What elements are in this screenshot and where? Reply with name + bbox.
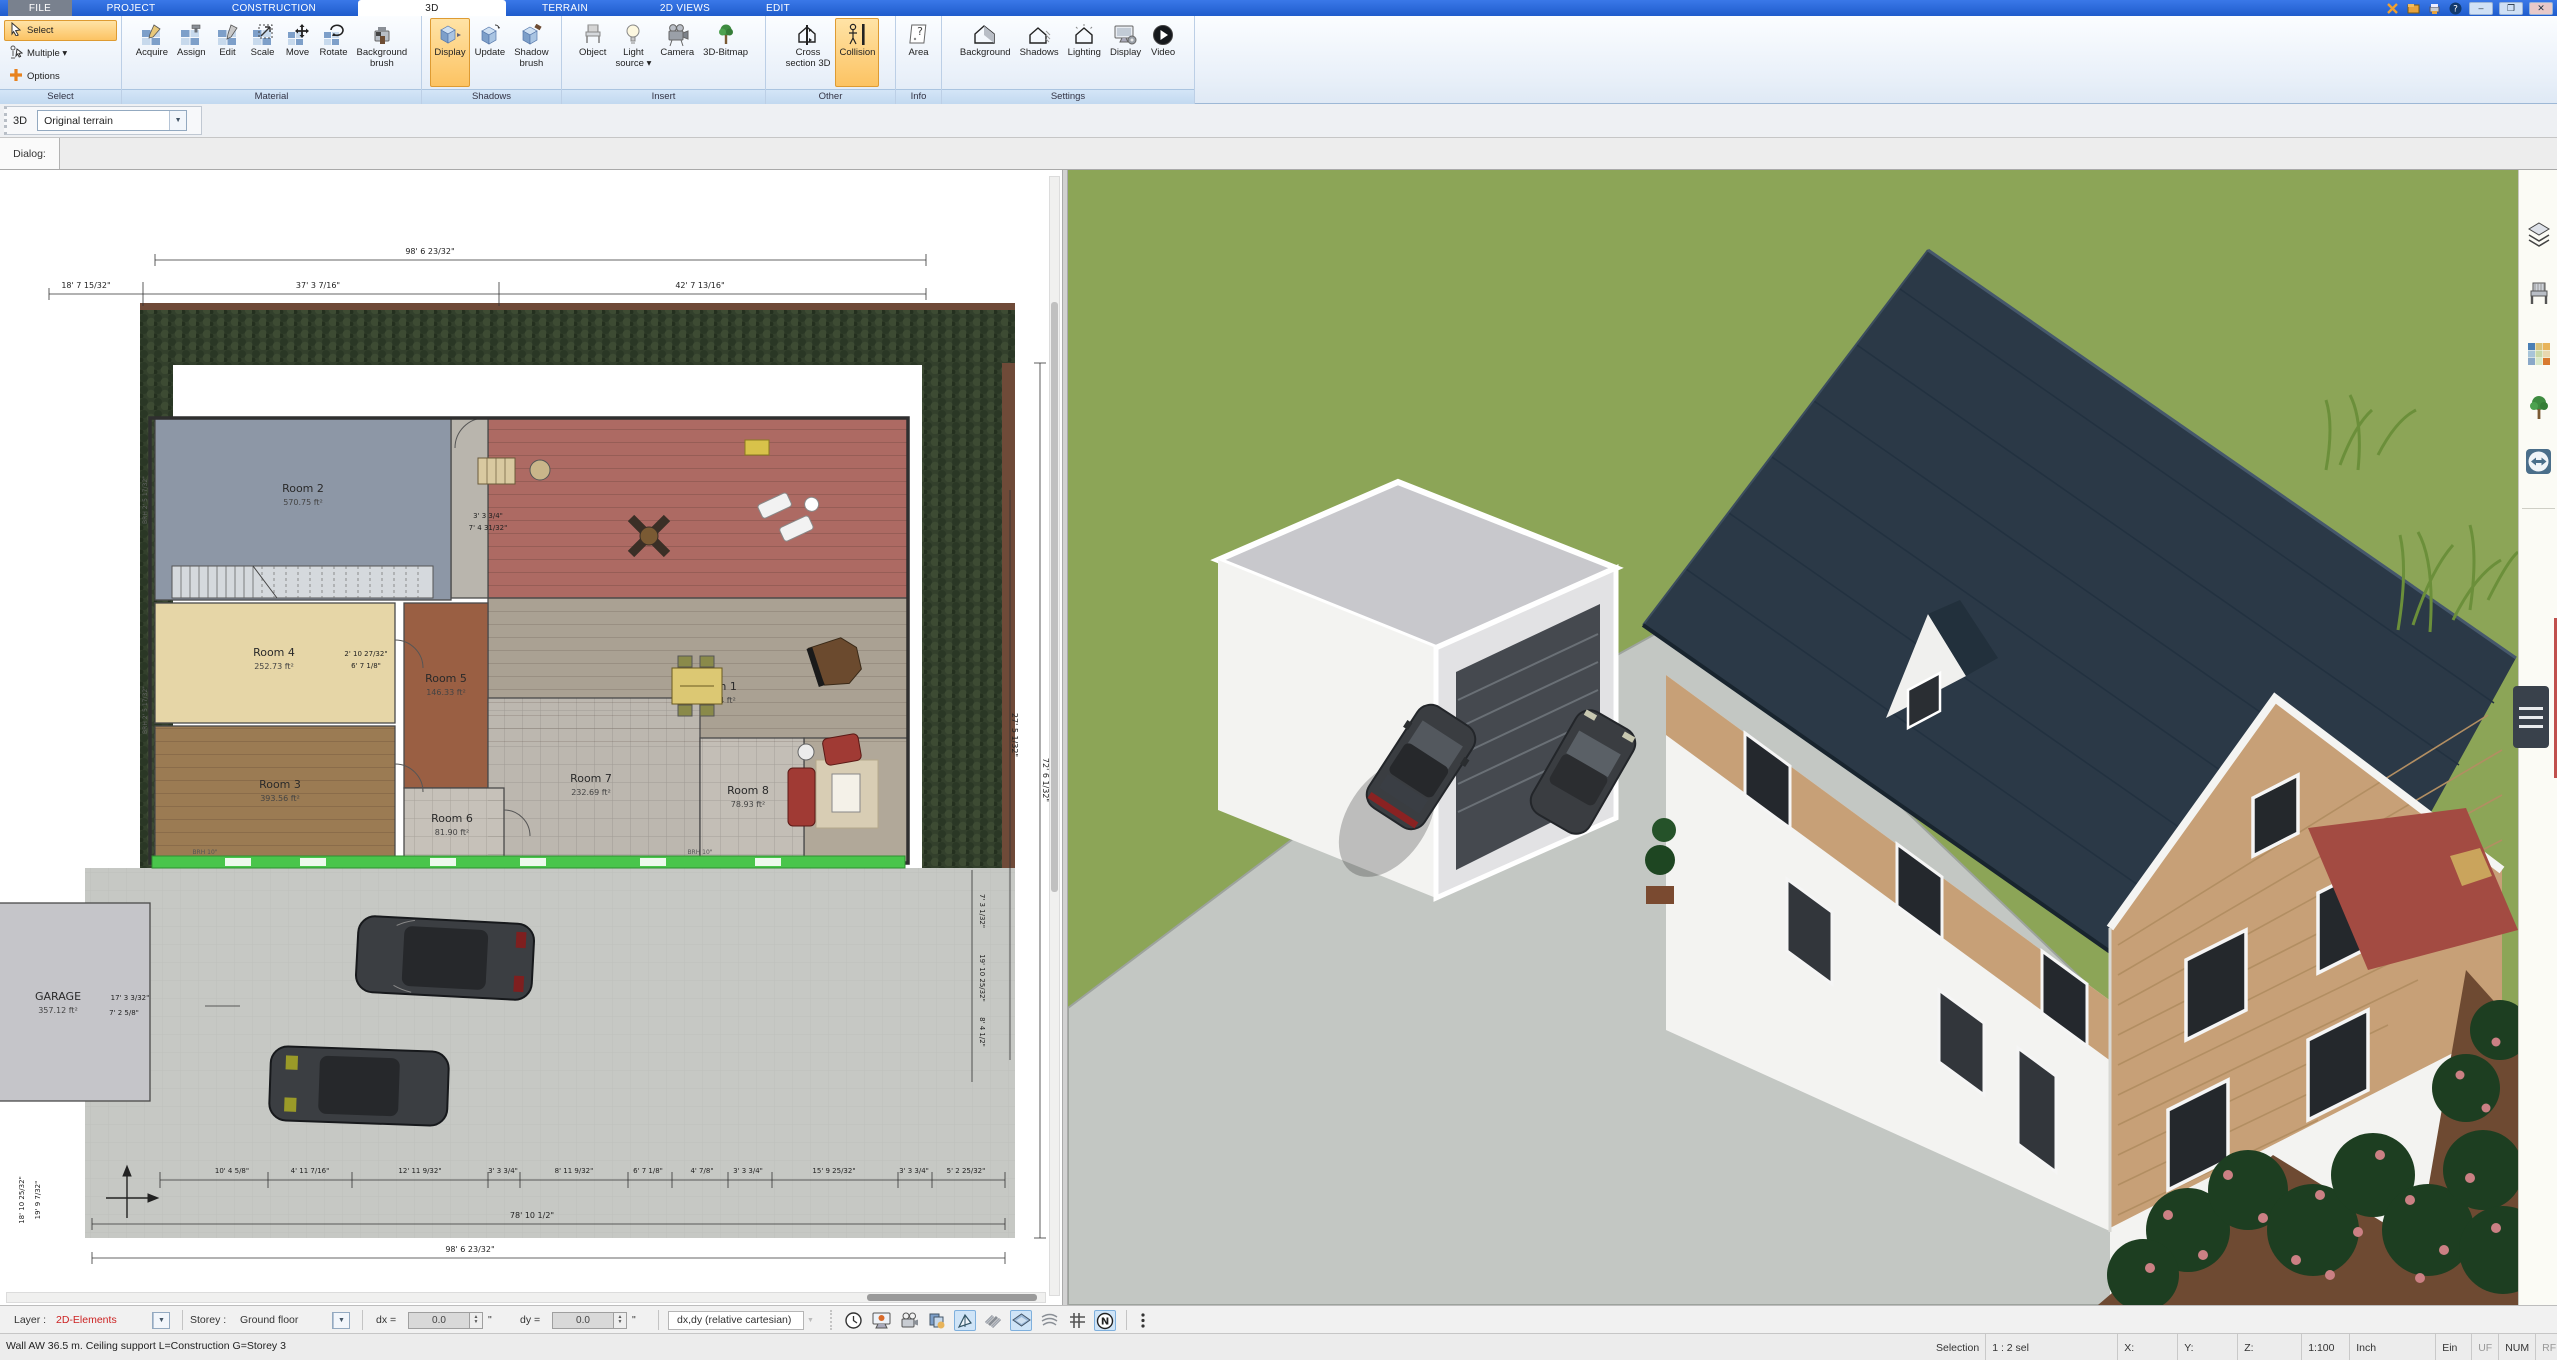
dimension-label: 42' 7 13/16" (675, 281, 724, 290)
collision-person-icon (845, 22, 869, 48)
layer-select-value: 2D-Elements (56, 1314, 152, 1326)
dx-field[interactable]: 0.0 ▲▼ " (408, 1306, 492, 1334)
camera-button[interactable]: Camera (656, 18, 698, 87)
dimension-label: 3' 3 3/4" (733, 1167, 763, 1175)
scroll-thumb[interactable] (867, 1294, 1037, 1301)
chevron-down-icon[interactable]: ▼ (169, 111, 186, 130)
monitor-gear-icon (1113, 22, 1139, 48)
ribbon: Select Multiple ▾ Options Select Acquire (0, 16, 2557, 104)
chevron-down-icon: ▼ (807, 1317, 814, 1324)
restore-button[interactable]: ❐ (2499, 2, 2523, 15)
dx-value[interactable]: 0.0 (408, 1312, 470, 1329)
close-button[interactable]: ✕ (2529, 2, 2553, 15)
terrain-select-value: Original terrain (38, 115, 169, 127)
rotate-button[interactable]: Rotate (316, 18, 352, 87)
ribbon-group-material: Acquire Assign Edit Scale Move (122, 16, 422, 104)
svg-text:?: ? (2453, 4, 2458, 14)
dimension-label: 7' 2 5/8" (109, 1009, 139, 1017)
ribbon-group-insert: Object Light source ▾ Camera 3D-Bitmap I… (562, 16, 766, 104)
plan-2d-view[interactable]: Room 2570.75 ft²Room 1714.34 ft²Room 425… (0, 170, 1062, 1305)
tab-construction[interactable]: CONSTRUCTION (190, 0, 358, 16)
floor-plan[interactable]: Room 2570.75 ft²Room 1714.34 ft²Room 425… (0, 170, 1062, 1305)
unit-indicator[interactable]: Inch (2349, 1334, 2435, 1360)
dimension-label: 27' 5 1/32" (1010, 713, 1019, 757)
storey-select-value: Ground floor (240, 1314, 332, 1326)
contour-icon[interactable] (1038, 1310, 1060, 1331)
dimension-label: 6' 7 1/8" (633, 1167, 663, 1175)
coord-mode-value: dx,dy (relative cartesian) (668, 1311, 804, 1330)
collision-button[interactable]: Collision (835, 18, 879, 87)
house-light-icon (1072, 22, 1096, 48)
group-caption: Material (122, 89, 421, 104)
dx-label: dx = (376, 1306, 396, 1334)
more-icon[interactable] (1132, 1310, 1154, 1331)
svg-text:?: ? (917, 25, 923, 38)
options-button[interactable]: Options (4, 66, 117, 87)
dimension-label: 98' 6 23/32" (405, 247, 454, 256)
dimension-label: BRH 2' 5 17/32" (142, 686, 149, 734)
dimension-label: 78' 10 1/2" (510, 1211, 554, 1220)
workspace: Room 2570.75 ft²Room 1714.34 ft²Room 425… (0, 170, 2557, 1305)
room-area-label: 570.75 ft² (283, 498, 323, 507)
dialog-row: Dialog: (0, 138, 2557, 170)
layer-display-icon[interactable] (2525, 220, 2552, 247)
ribbon-group-other: Cross section 3D Collision Other (766, 16, 896, 104)
tab-terrain[interactable]: TERRAIN (506, 0, 624, 16)
area-info-icon: ? (908, 22, 930, 48)
remote-connect-icon[interactable] (2525, 448, 2552, 475)
dimension-label: 2' 10 27/32" (344, 650, 387, 658)
edit-material-button[interactable]: Edit (211, 18, 245, 87)
plus-icon (9, 68, 23, 85)
side-toolbar (2518, 170, 2557, 1305)
ribbon-group-shadows: Display Update Shadow brush Shadows (422, 16, 562, 104)
group-caption: Select (0, 89, 121, 104)
terrain-select[interactable]: Original terrain ▼ (37, 110, 187, 131)
room-area-label: 252.73 ft² (254, 662, 294, 671)
dx-stepper[interactable]: ▲▼ (470, 1312, 483, 1329)
room-label: Room 2 (282, 482, 324, 495)
statusbar: Wall AW 36.5 m. Ceiling support L=Constr… (0, 1333, 2557, 1360)
tab-file[interactable]: FILE (8, 0, 72, 16)
view-mode-label: 3D (13, 115, 27, 127)
group-caption: Settings (942, 89, 1194, 104)
y-coordinate: Y: (2177, 1334, 2237, 1360)
lighting-settings-button[interactable]: Lighting (1064, 18, 1105, 87)
object-button[interactable]: Object (575, 18, 610, 87)
group-caption: Shadows (422, 89, 561, 104)
x-coordinate: X: (2117, 1334, 2177, 1360)
dimension-label: 8' 11 9/32" (555, 1167, 594, 1175)
cursor-icon (9, 22, 23, 39)
plan-car[interactable] (355, 915, 535, 1000)
cube-refresh-icon (479, 22, 501, 48)
brush-icon (370, 22, 394, 48)
tools-icon[interactable] (2385, 2, 2400, 15)
dimension-label: 8' 4 1/2" (978, 1017, 986, 1047)
dimension-label: 19' 9 7/32" (34, 1181, 42, 1220)
stairs[interactable] (172, 566, 433, 598)
dimension-label: 17' 3 3/32" (111, 994, 150, 1002)
multiple-button[interactable]: Multiple ▾ (4, 43, 117, 64)
tab-project[interactable]: PROJECT (72, 0, 190, 16)
help-icon[interactable]: ? (2448, 2, 2463, 15)
plan-room[interactable]: Room 5146.33 ft² (404, 603, 488, 788)
ein-indicator: Ein (2435, 1334, 2471, 1360)
camera-icon (665, 22, 689, 48)
scroll-thumb[interactable] (1051, 302, 1058, 892)
group-caption: Other (766, 89, 895, 104)
render-3d-view[interactable] (1068, 170, 2518, 1305)
acquire-button[interactable]: Acquire (132, 18, 172, 87)
divider (2522, 508, 2555, 509)
cube-icon (438, 22, 462, 48)
dimension-label: 19' 10 25/32" (978, 954, 986, 1002)
uf-indicator: UF (2471, 1334, 2498, 1360)
room-label: GARAGE (35, 990, 81, 1003)
application-window: FILE PROJECT CONSTRUCTION 3D TERRAIN 2D … (0, 0, 2557, 1360)
dimension-label: 15' 9 25/32" (812, 1167, 855, 1175)
dimension-label: 10' 4 5/8" (215, 1167, 249, 1175)
clock-icon[interactable] (842, 1310, 864, 1331)
dx-unit: " (488, 1314, 492, 1326)
screen-capture-icon[interactable] (870, 1310, 892, 1331)
pipes-icon[interactable] (982, 1310, 1004, 1331)
plan-horizontal-scrollbar[interactable] (6, 1292, 1046, 1303)
rf-indicator: RF (2535, 1334, 2557, 1360)
scene-3d[interactable] (1068, 170, 2518, 1305)
group-caption: Insert (562, 89, 765, 104)
material-stamp-icon (180, 22, 202, 48)
house-background-icon (972, 22, 998, 48)
dimension-label: 6' 7 1/8" (351, 662, 381, 670)
area-button[interactable]: ? Area (902, 18, 936, 87)
angle-flag-icon[interactable] (954, 1310, 976, 1331)
panel-handle[interactable] (2513, 686, 2549, 748)
chevron-down-icon[interactable]: ▼ (153, 1313, 169, 1328)
north-icon[interactable]: N (1094, 1310, 1116, 1331)
dimension-label: 4' 7/8" (690, 1167, 713, 1175)
room-label: Room 4 (253, 646, 295, 659)
scale-indicator[interactable]: 1:100 (2301, 1334, 2349, 1360)
tile-icon[interactable] (1010, 1310, 1032, 1331)
selection-label: Selection (1930, 1334, 1985, 1360)
selection-value: 1 : 2 sel (1985, 1334, 2117, 1360)
dy-field[interactable]: 0.0 ▲▼ " (552, 1306, 636, 1334)
view-toolbar: 3D Original terrain ▼ (0, 104, 2557, 138)
multi-select-icon (9, 45, 23, 62)
plants-catalog-icon[interactable] (2525, 394, 2552, 421)
tab-2d-views[interactable]: 2D VIEWS (624, 0, 746, 16)
dy-label: dy = (520, 1306, 540, 1334)
material-pencil-icon (217, 22, 239, 48)
move-button[interactable]: Move (281, 18, 315, 87)
move-icon (287, 22, 309, 48)
dimension-label: BRH 2' 5 17/32" (142, 476, 149, 524)
background-brush-button[interactable]: Background brush (353, 18, 412, 87)
chevron-down-icon[interactable]: ▼ (333, 1313, 349, 1328)
ribbon-group-info: ? Area Info (896, 16, 942, 104)
video-camera-icon[interactable] (898, 1310, 920, 1331)
shadows-settings-button[interactable]: Shadows (1016, 18, 1063, 87)
dimension-label: 12' 11 9/32" (398, 1167, 441, 1175)
tree-icon (716, 22, 736, 48)
num-indicator: NUM (2498, 1334, 2535, 1360)
z-coordinate: Z: (2237, 1334, 2301, 1360)
minimize-button[interactable]: – (2469, 2, 2493, 15)
assign-button[interactable]: Assign (173, 18, 210, 87)
scale-icon (252, 22, 274, 48)
cross-section-3d-button[interactable]: Cross section 3D (782, 18, 835, 87)
ribbon-group-select: Select Multiple ▾ Options Select (0, 16, 122, 104)
dimension-label: BRH 10" (687, 849, 712, 856)
dimension-label: 3' 3 3/4" (473, 512, 503, 520)
furniture-catalog-icon[interactable] (2525, 280, 2552, 307)
dimension-label: 7' 3 1/32" (978, 894, 986, 928)
bottom-toolbar: Layer : 2D-Elements ▼ Storey : Ground fl… (0, 1305, 2557, 1333)
dimension-label: 4' 11 7/16" (291, 1167, 330, 1175)
dimension-label: 98' 6 23/32" (445, 1245, 494, 1254)
scale-button[interactable]: Scale (246, 18, 280, 87)
dimension-label: 3' 3 3/4" (899, 1167, 929, 1175)
tab-3d[interactable]: 3D (358, 0, 506, 16)
dialog-label: Dialog: (0, 138, 60, 169)
grid-icon[interactable] (1066, 1310, 1088, 1331)
plan-vertical-scrollbar[interactable] (1049, 176, 1060, 1296)
dy-unit: " (632, 1314, 636, 1326)
dimension-label: 37' 3 7/16" (296, 281, 340, 290)
folder-icon[interactable] (2406, 2, 2421, 15)
storey-select[interactable]: Ground floor ▼ (240, 1306, 350, 1334)
rotate-icon (323, 22, 345, 48)
3d-bitmap-button[interactable]: 3D-Bitmap (699, 18, 752, 87)
materials-catalog-icon[interactable] (2525, 340, 2552, 367)
status-message: Wall AW 36.5 m. Ceiling support L=Constr… (6, 1340, 286, 1352)
plan-room[interactable] (451, 418, 488, 598)
tab-edit[interactable]: EDIT (746, 0, 810, 16)
copy-layers-icon[interactable] (926, 1310, 948, 1331)
display-settings-button[interactable]: Display (1106, 18, 1145, 87)
display-shadows-button[interactable]: Display (430, 18, 469, 87)
light-source-button[interactable]: Light source ▾ (611, 18, 655, 87)
layer-label: Layer : (14, 1306, 46, 1334)
cube-brush-icon (520, 22, 542, 48)
room-label: Room 5 (425, 672, 467, 685)
selected-wall[interactable] (152, 856, 905, 868)
update-shadows-button[interactable]: Update (471, 18, 510, 87)
coord-mode-select[interactable]: dx,dy (relative cartesian) ▼ (668, 1306, 814, 1334)
play-icon (1151, 22, 1175, 48)
video-button[interactable]: Video (1146, 18, 1180, 87)
house-shadow-icon (1027, 22, 1051, 48)
ribbon-group-settings: Background Shadows Lighting Display Vide… (942, 16, 1195, 104)
group-caption: Info (896, 89, 941, 104)
layer-select[interactable]: 2D-Elements ▼ (56, 1306, 170, 1334)
view-mode-panel: 3D Original terrain ▼ (4, 106, 202, 135)
dimension-label: BRH 10" (192, 849, 217, 856)
chair-icon (582, 22, 604, 48)
dimension-label: 5' 2 25/32" (947, 1167, 986, 1175)
storey-label: Storey : (190, 1306, 226, 1334)
room-area-label: 357.12 ft² (38, 1006, 78, 1015)
plan-room[interactable]: GARAGE357.12 ft² (0, 903, 150, 1101)
material-pick-icon (141, 22, 163, 48)
svg-text:N: N (1101, 1316, 1109, 1327)
cross-section-icon (796, 22, 820, 48)
select-button[interactable]: Select (4, 20, 117, 41)
bulb-icon (623, 22, 643, 48)
plan-car[interactable] (269, 1046, 449, 1126)
dimension-label: 3' 3 3/4" (488, 1167, 518, 1175)
print-icon[interactable] (2427, 2, 2442, 15)
dimension-label: 18' 7 15/32" (61, 281, 110, 290)
dy-value[interactable]: 0.0 (552, 1312, 614, 1329)
dy-stepper[interactable]: ▲▼ (614, 1312, 627, 1329)
titlebar: FILE PROJECT CONSTRUCTION 3D TERRAIN 2D … (0, 0, 2557, 16)
background-settings-button[interactable]: Background (956, 18, 1015, 87)
room-area-label: 146.33 ft² (426, 688, 466, 697)
dimension-label: 7' 4 31/32" (469, 524, 508, 532)
dimension-label: 18' 10 25/32" (18, 1176, 26, 1224)
shadow-brush-button[interactable]: Shadow brush (510, 18, 552, 87)
